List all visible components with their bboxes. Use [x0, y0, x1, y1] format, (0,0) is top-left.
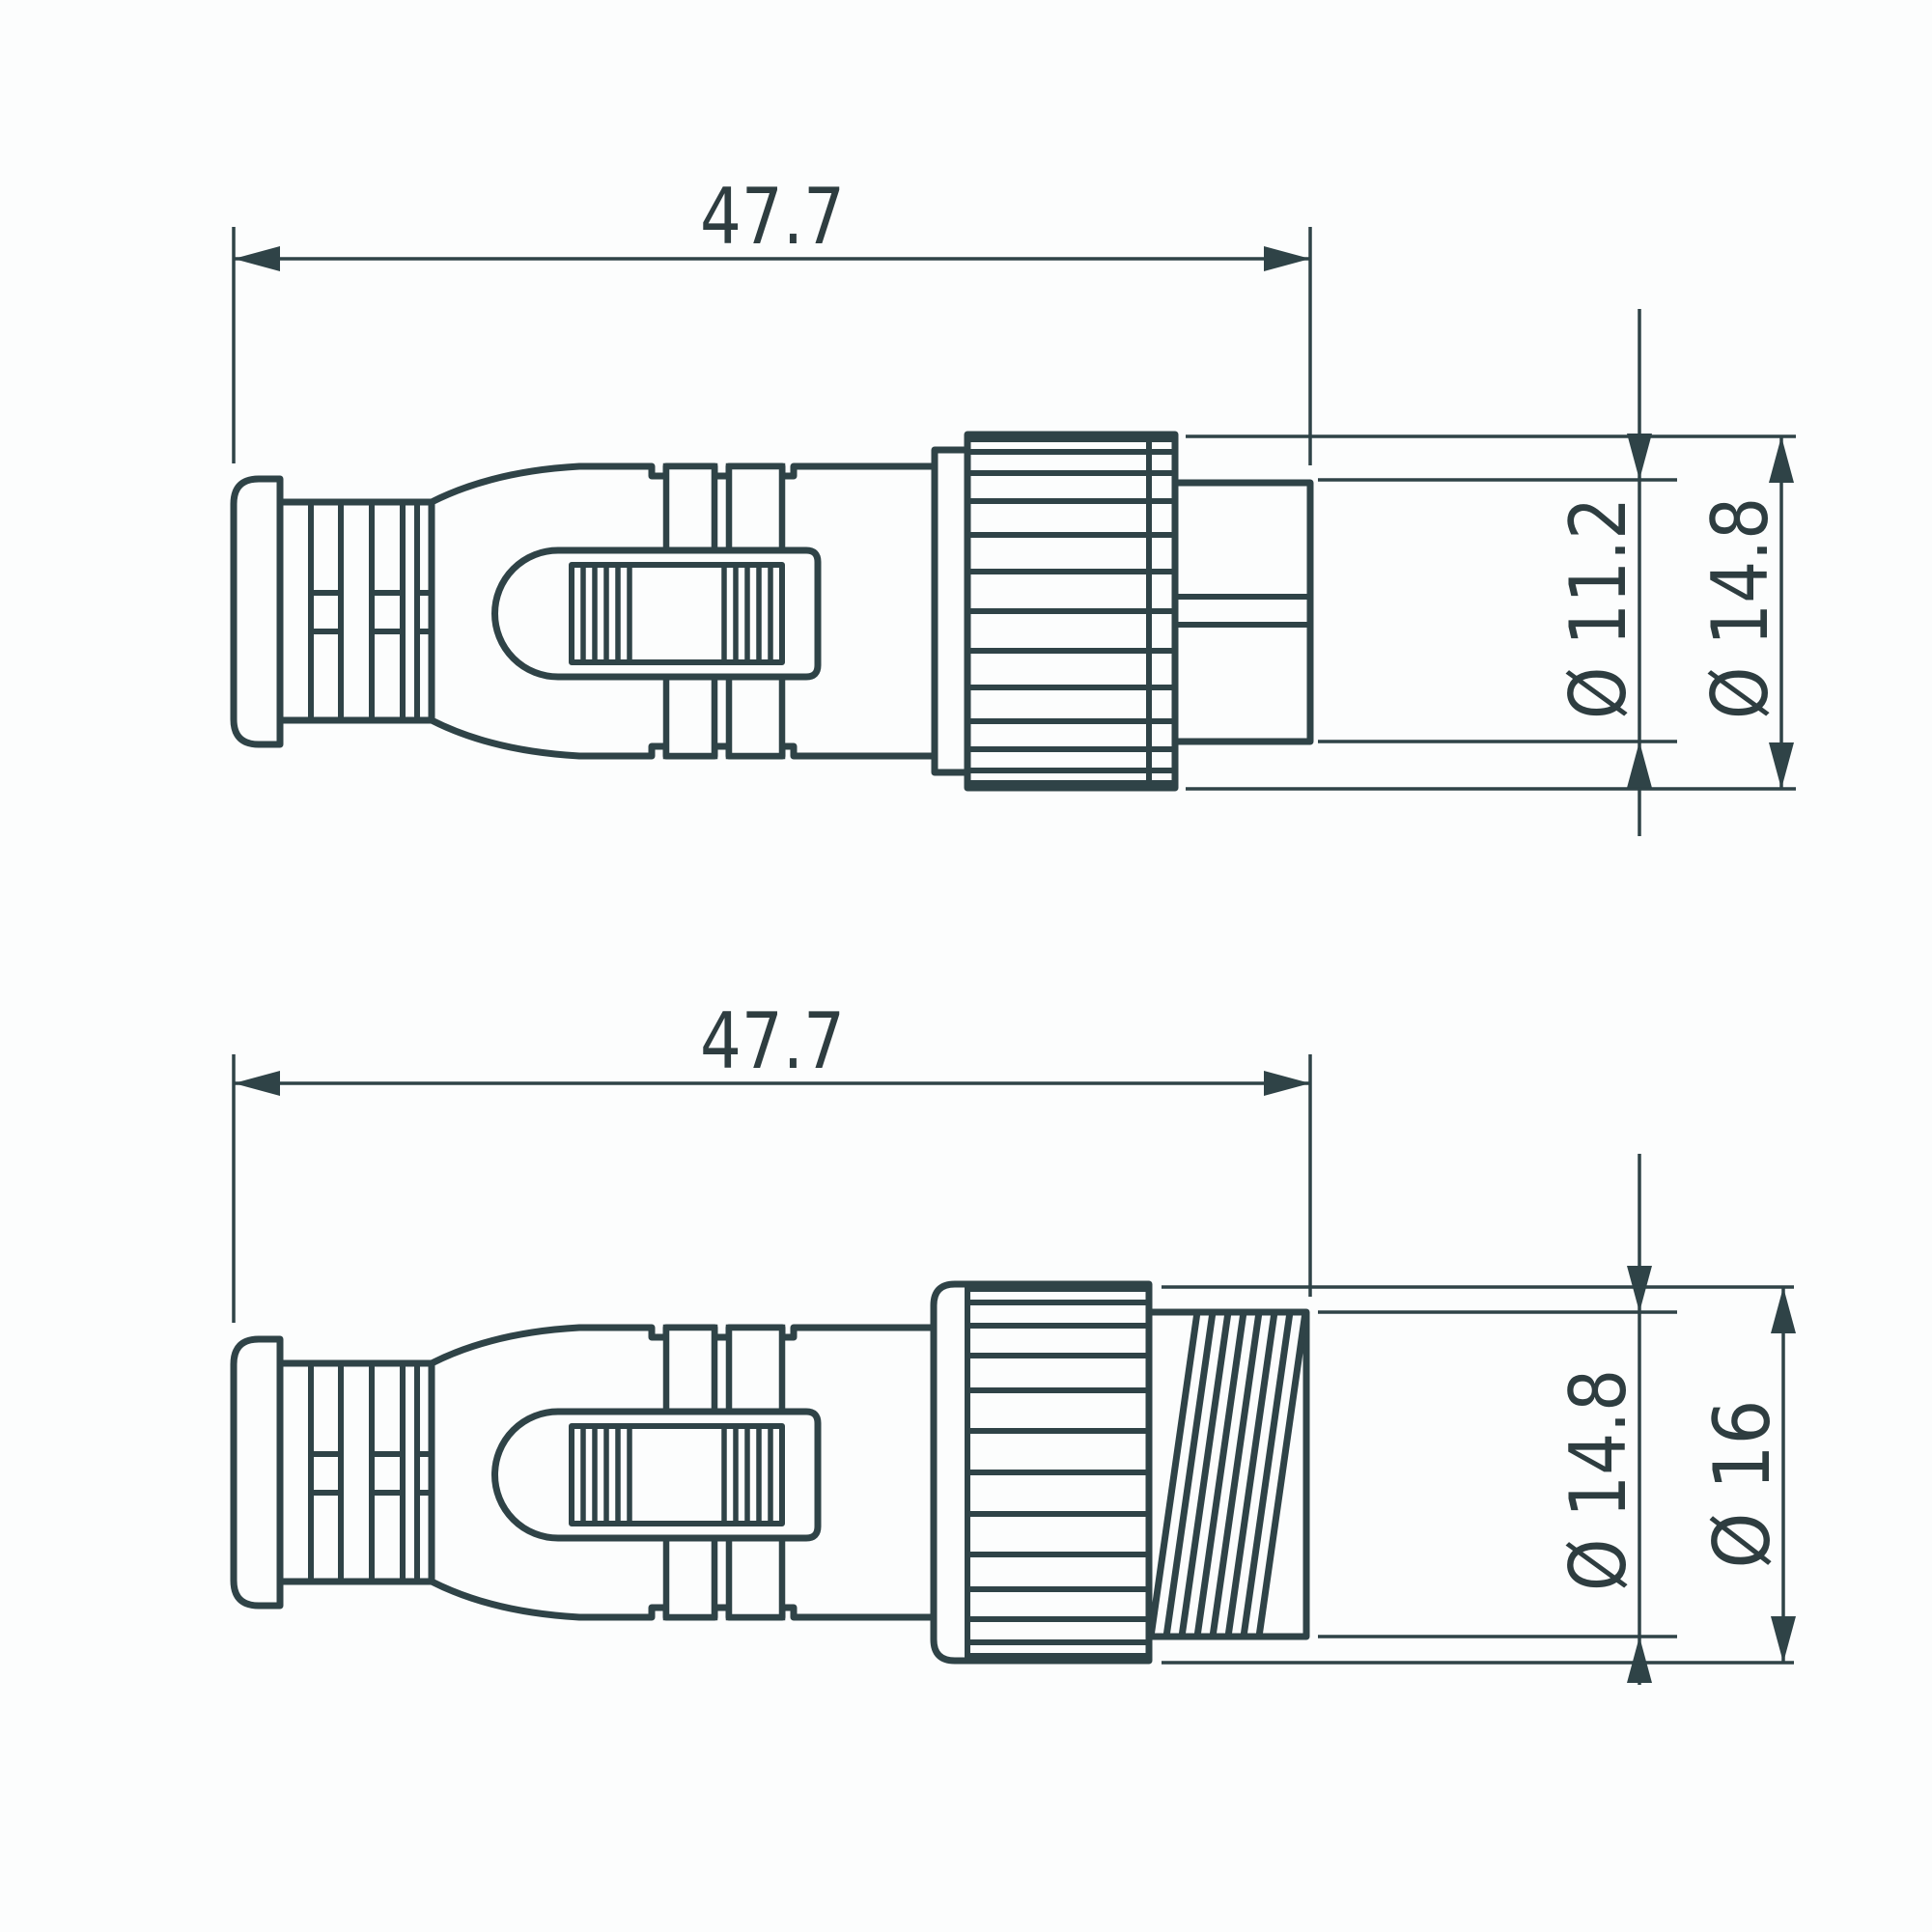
inner-diameter-label: Ø 14.8 — [1554, 1369, 1643, 1591]
length-dimension: 47.7 — [234, 172, 1310, 465]
arrowhead-bottom — [1627, 1637, 1652, 1683]
latch-window — [572, 565, 782, 662]
inner-diameter-dimension: Ø 14.8 — [1318, 1154, 1677, 1685]
arrowhead-top — [1769, 436, 1794, 483]
coupling-nut — [934, 1284, 1149, 1661]
arrowhead-top — [1627, 1266, 1652, 1312]
latch — [495, 550, 819, 677]
arrowhead-bottom — [1769, 742, 1794, 789]
arrowhead-right — [1264, 246, 1310, 271]
cable-gland-body — [280, 1363, 432, 1582]
cable-gland — [234, 1339, 432, 1606]
arrowhead-left — [234, 1071, 280, 1096]
technical-drawing: 47.7 Ø 11.2 Ø 14.8 — [0, 0, 1932, 1932]
outer-diameter-label: Ø 16 — [1697, 1400, 1787, 1569]
arrowhead-right — [1264, 1071, 1310, 1096]
coupling-nut — [967, 434, 1175, 788]
length-dimension-label: 47.7 — [700, 172, 845, 262]
plug-tip — [1175, 483, 1310, 742]
drawing-page: 47.7 Ø 11.2 Ø 14.8 — [0, 0, 1932, 1932]
outer-diameter-label: Ø 14.8 — [1695, 497, 1785, 719]
arrowhead-bottom — [1627, 742, 1652, 788]
cable-gland-body — [280, 502, 432, 720]
view-male-connector: 47.7 Ø 11.2 Ø 14.8 — [234, 172, 1796, 836]
arrowhead-bottom — [1771, 1616, 1796, 1663]
inner-diameter-dimension: Ø 11.2 — [1318, 309, 1677, 836]
arrowhead-top — [1627, 434, 1652, 480]
cable-gland-cap — [234, 1339, 280, 1606]
arrowhead-left — [234, 246, 280, 271]
arrowhead-top — [1771, 1287, 1796, 1333]
latch — [495, 1412, 819, 1538]
view-female-connector: 47.7 Ø 14.8 Ø 16 — [234, 996, 1796, 1685]
threaded-section — [1149, 1312, 1306, 1637]
washer-ring — [935, 450, 967, 772]
cable-gland — [234, 479, 432, 744]
inner-diameter-label: Ø 11.2 — [1554, 497, 1643, 719]
latch-window — [572, 1426, 782, 1524]
plug-outline — [1175, 483, 1310, 742]
length-dimension: 47.7 — [234, 996, 1310, 1323]
cable-gland-cap — [234, 479, 280, 744]
length-dimension-label: 47.7 — [700, 996, 845, 1086]
